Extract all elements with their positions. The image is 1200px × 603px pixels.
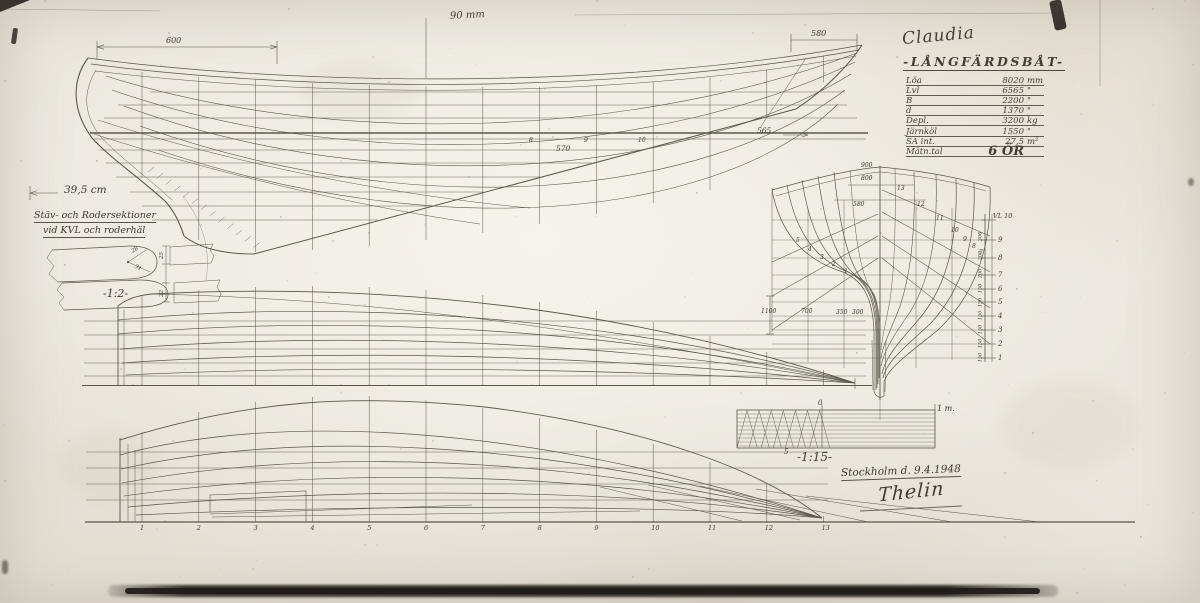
waterline-spacing-value: 150 <box>978 311 983 321</box>
waterline-spacing-value: 150 <box>978 284 983 294</box>
spec-label: Järnköl <box>906 128 937 136</box>
lwl-station-mark: 10 <box>638 138 646 144</box>
section-number-fwd: 7 <box>979 250 983 256</box>
spec-row: Lvl6565" <box>906 86 1044 96</box>
profile-view <box>76 18 868 254</box>
section-number-fwd: 8 <box>972 244 976 250</box>
station-number: 6 <box>424 525 428 532</box>
scale-zero-label: 0 <box>818 400 822 407</box>
half-breadth-plan <box>82 291 872 389</box>
scan-speck-right <box>1188 178 1194 186</box>
lwl-station-mark: 9 <box>584 138 588 144</box>
spec-label: Lvl <box>906 87 919 95</box>
offset-350: 350 <box>836 310 847 316</box>
offset-800: 800 <box>861 176 872 182</box>
left-measure-label: 39,5 cm <box>64 185 107 196</box>
section-number-aft: 5 <box>796 238 800 244</box>
waterline-number: 7 <box>998 272 1002 279</box>
waterline-spacing-value: 300 <box>978 232 983 242</box>
paper-stain <box>60 430 160 500</box>
detail-title-line2: vid KVL och roderhäl <box>43 226 145 238</box>
spec-value: 8020 <box>1002 77 1024 85</box>
stern-dimension-label: 580 <box>811 30 826 38</box>
spec-value: 2200 <box>1002 97 1024 105</box>
spec-value: 6565 <box>1002 87 1024 95</box>
dim-565-label: 565 <box>757 127 771 135</box>
offset-580: 580 <box>853 202 864 208</box>
spec-row: Mätn.tal6 ÖR <box>906 147 1044 157</box>
offset-900: 900 <box>861 163 872 169</box>
waterline-10-label: VL 10 <box>993 213 1012 220</box>
section-number-fwd: 13 <box>897 186 905 192</box>
spec-unit: " <box>1027 107 1044 115</box>
section-number-aft: 4 <box>808 247 812 253</box>
spec-row: Löa8020mm <box>906 76 1044 86</box>
waterline-spacing-value: 150 <box>978 339 983 349</box>
spec-row: B2200" <box>906 96 1044 106</box>
paper-stain <box>300 60 420 120</box>
spec-table: Löa8020mmLvl6565"B2200"d1370"Depl.3200kg… <box>906 76 1044 157</box>
top-margin-note: 90 mm <box>450 10 485 22</box>
spec-row: Järnköl1550" <box>906 126 1044 136</box>
drawing-sheet: 90 mm 600 580 565 570 39,5 cm Stäv- och … <box>0 0 1200 603</box>
scan-speck-bottomleft <box>2 560 8 574</box>
offset-1100: 1100 <box>761 309 776 315</box>
section-number-fwd: 10 <box>951 228 959 234</box>
section-number-aft: 3 <box>820 255 824 261</box>
paper-stain <box>1000 380 1140 470</box>
spec-unit: m² <box>1027 138 1044 146</box>
spec-label: Löa <box>906 77 922 85</box>
lwl-station-mark: 8 <box>529 138 533 144</box>
station-number: 10 <box>651 525 659 532</box>
detail-scale-label: -1:2- <box>103 288 128 299</box>
spec-value: 1370 <box>1002 107 1024 115</box>
spec-row: d1370" <box>906 106 1044 116</box>
spec-unit: " <box>1027 128 1044 136</box>
waterline-spacing-value: 150 <box>978 297 983 307</box>
signature-underline <box>860 506 962 511</box>
station-number: 13 <box>822 525 830 532</box>
waterline-spacing-value: 200 <box>978 268 983 278</box>
scale-meter-label: 1 m. <box>937 405 955 413</box>
section-number-fwd: 12 <box>917 202 925 208</box>
section-number-fwd: 9 <box>963 237 967 243</box>
offset-700: 700 <box>801 309 812 315</box>
detail-title-line1: Stäv- och Rodersektioner <box>34 211 156 223</box>
detail-dim-25: 25 <box>160 252 166 259</box>
station-number: 4 <box>310 525 314 532</box>
station-number: 1 <box>140 525 144 532</box>
spec-value: 1550 <box>1002 128 1024 136</box>
waterline-number: 8 <box>998 255 1002 262</box>
spec-unit: " <box>1027 87 1044 95</box>
spec-unit: " <box>1027 97 1044 105</box>
spec-unit: mm <box>1027 77 1044 85</box>
waterline-number: 9 <box>998 237 1002 244</box>
detail-dim-22: 22 <box>160 290 166 297</box>
station-number: 5 <box>367 525 371 532</box>
station-number: 11 <box>708 525 716 532</box>
boat-type-title: -LÅNGFÄRDSBÅT- <box>903 54 1065 71</box>
waterline-spacing-value: 150 <box>978 353 983 363</box>
waterline-number: 5 <box>998 299 1002 306</box>
section-number-aft: 2 <box>832 262 836 268</box>
bottom-plan <box>85 401 1135 522</box>
spec-label: Mätn.tal <box>906 148 943 156</box>
station-number: 12 <box>765 525 773 532</box>
spec-value: 3200 <box>1002 117 1024 125</box>
station-number: 3 <box>254 525 258 532</box>
station-number: 9 <box>594 525 598 532</box>
waterline-number: 1 <box>998 355 1002 362</box>
station-number: 8 <box>538 525 542 532</box>
spec-label: Depl. <box>906 117 929 125</box>
section-number-fwd: 11 <box>936 216 944 222</box>
waterline-number: 3 <box>998 327 1002 334</box>
dim-570-label: 570 <box>556 145 570 153</box>
station-number: 2 <box>197 525 201 532</box>
scan-shadow-bottom-core <box>125 588 1040 594</box>
spec-unit: kg <box>1027 117 1044 125</box>
waterline-spacing-value: 150 <box>978 325 983 335</box>
station-number: 7 <box>481 525 485 532</box>
waterline-number: 4 <box>998 313 1002 320</box>
waterline-number: 2 <box>998 341 1002 348</box>
section-number-aft: 1 <box>844 269 848 275</box>
scale-five-label: 5 <box>784 449 788 456</box>
bow-dimension-label: 600 <box>166 37 181 45</box>
waterline-number: 6 <box>998 286 1002 293</box>
spec-label: B <box>906 97 912 105</box>
main-scale-label: -1:15- <box>797 451 832 463</box>
spec-value: 6 ÖR <box>988 148 1024 156</box>
offset-300: 300 <box>852 310 863 316</box>
spec-label: d <box>906 107 911 115</box>
body-plan <box>766 166 992 420</box>
spec-label: SA int. <box>906 138 935 146</box>
spec-row: Depl.3200kg <box>906 116 1044 126</box>
